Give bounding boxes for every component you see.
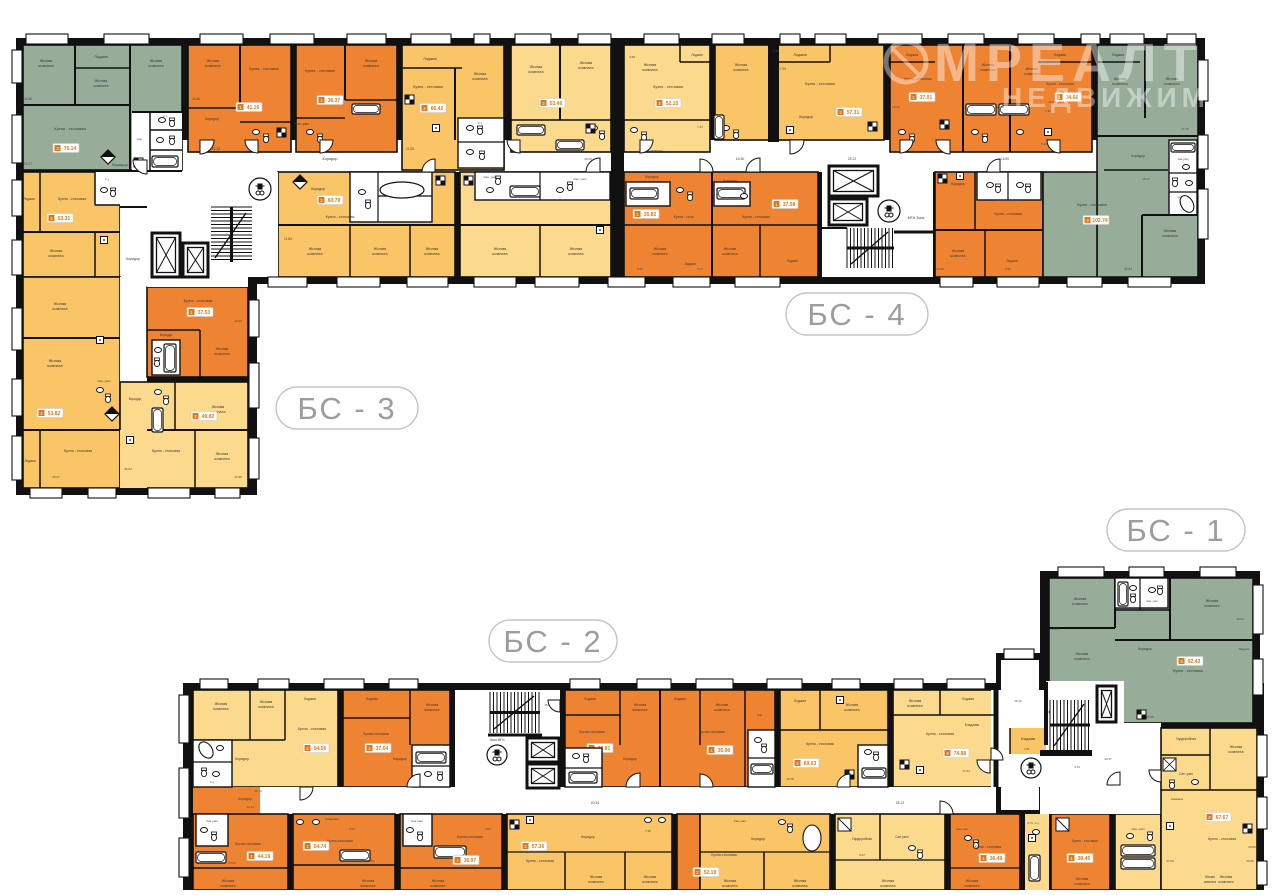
- svg-text:21.88: 21.88: [406, 147, 414, 151]
- svg-text:11.86: 11.86: [192, 97, 200, 101]
- svg-text:комната: комната: [964, 883, 980, 888]
- svg-text:36.06: 36.06: [584, 157, 592, 161]
- svg-text:Коридор: Коридор: [238, 797, 252, 801]
- svg-text:Кухня - столовая: Кухня - столовая: [326, 215, 355, 219]
- svg-text:41.16: 41.16: [247, 105, 260, 111]
- svg-text:Лоджия: Лоджия: [366, 697, 378, 701]
- svg-text:44.19: 44.19: [258, 854, 271, 860]
- svg-text:комната: комната: [1218, 879, 1234, 884]
- svg-text:14.20: 14.20: [234, 319, 242, 323]
- svg-text:Гардеробная: Гардеробная: [1176, 737, 1196, 741]
- svg-text:36.49: 36.49: [990, 856, 1003, 862]
- svg-text:Коридор: Коридор: [799, 115, 813, 119]
- svg-text:Лоджия: Лоджия: [684, 262, 696, 266]
- svg-text:комната: комната: [1162, 233, 1178, 238]
- svg-text:Сан узел: Сан узел: [895, 835, 908, 839]
- svg-text:комната: комната: [307, 251, 323, 256]
- svg-text:Кухня - столовая: Кухня - столовая: [413, 85, 443, 89]
- svg-text:Кухня-столовая: Кухня-столовая: [699, 730, 725, 734]
- svg-text:комната: комната: [722, 883, 738, 888]
- svg-text:66.42: 66.42: [431, 106, 444, 112]
- svg-text:БС - 1: БС - 1: [1126, 513, 1225, 548]
- svg-text:МГН Зона: МГН Зона: [908, 216, 925, 220]
- svg-text:Кладовая: Кладовая: [965, 723, 980, 727]
- svg-text:36.97: 36.97: [464, 858, 477, 864]
- svg-text:10.98: 10.98: [936, 267, 944, 271]
- svg-text:Кухня - столовая: Кухня - столовая: [64, 449, 92, 453]
- svg-text:53.49: 53.49: [550, 101, 563, 107]
- svg-text:Кор.: Кор.: [757, 713, 763, 717]
- svg-text:3.69: 3.69: [629, 55, 635, 59]
- svg-text:Кухня - стол.: Кухня - стол.: [674, 215, 695, 219]
- svg-text:Лоджия: Лоджия: [793, 53, 806, 57]
- svg-text:10.17: 10.17: [24, 162, 32, 166]
- svg-text:комната: комната: [714, 707, 730, 712]
- svg-text:Лоджия: Лоджия: [423, 57, 436, 61]
- svg-text:Коридор: Коридор: [323, 157, 338, 161]
- svg-text:БС - 4: БС - 4: [807, 297, 906, 332]
- svg-text:16.27: 16.27: [1142, 177, 1150, 181]
- svg-text:25.22: 25.22: [848, 157, 857, 161]
- svg-text:Лоджия: Лоджия: [584, 697, 596, 701]
- svg-text:37.64: 37.64: [376, 746, 389, 752]
- svg-text:Коридор: Коридор: [1131, 154, 1145, 158]
- svg-text:С.у.: С.у.: [1035, 821, 1040, 825]
- svg-text:76.14: 76.14: [64, 146, 77, 152]
- svg-text:69.03: 69.03: [804, 761, 817, 767]
- svg-text:комната: комната: [568, 251, 584, 256]
- svg-text:Кухня - столовая: Кухня - столовая: [1077, 203, 1107, 207]
- svg-text:комната: комната: [492, 251, 508, 256]
- svg-text:Кладовая: Кладовая: [325, 817, 339, 821]
- svg-text:Кухня - столовая: Кухня - столовая: [742, 215, 769, 219]
- svg-text:комната: комната: [588, 879, 604, 884]
- svg-text:53.31: 53.31: [58, 216, 71, 222]
- svg-text:комната: комната: [214, 456, 230, 461]
- svg-text:26.05: 26.05: [1146, 715, 1154, 719]
- svg-text:44.37: 44.37: [1104, 757, 1112, 761]
- svg-text:комната: комната: [528, 69, 544, 74]
- svg-text:Кладовая: Кладовая: [1021, 737, 1036, 741]
- svg-text:25.22: 25.22: [896, 801, 905, 805]
- svg-text:комната: комната: [205, 63, 221, 68]
- svg-text:7.96: 7.96: [645, 829, 651, 833]
- svg-text:комната: комната: [372, 251, 388, 256]
- svg-text:Комната: Комната: [1171, 797, 1183, 801]
- svg-text:35.47: 35.47: [52, 475, 60, 479]
- svg-text:12.88: 12.88: [234, 475, 242, 479]
- svg-text:Коридор: Коридор: [623, 757, 637, 761]
- svg-text:37.53: 37.53: [198, 310, 211, 316]
- svg-text:17.04: 17.04: [962, 769, 970, 773]
- svg-text:Коридор: Коридор: [581, 835, 595, 839]
- svg-text:Сан узел: Сан узел: [411, 819, 423, 823]
- svg-text:комната: комната: [48, 253, 64, 258]
- svg-text:Лоджия: Лоджия: [304, 697, 316, 701]
- svg-text:Коридор: Коридор: [112, 162, 129, 167]
- svg-text:54.74: 54.74: [314, 844, 327, 850]
- svg-text:Гардеробная: Гардеробная: [852, 837, 872, 841]
- svg-text:35.82: 35.82: [644, 212, 657, 218]
- svg-text:С.у: С.у: [210, 780, 215, 784]
- svg-text:67.67: 67.67: [1216, 815, 1229, 821]
- svg-text:Сан узел: Сан узел: [1178, 157, 1189, 161]
- svg-text:3.99: 3.99: [1005, 267, 1011, 271]
- svg-text:35.90: 35.90: [718, 748, 731, 754]
- svg-text:21.86: 21.86: [284, 237, 292, 241]
- svg-text:Кухня-столовая: Кухня-столовая: [579, 730, 605, 734]
- svg-text:Лоджия: Лоджия: [674, 697, 686, 701]
- svg-text:комната: комната: [1074, 656, 1090, 661]
- svg-text:37.58: 37.58: [783, 202, 796, 208]
- svg-text:34.64: 34.64: [1124, 267, 1132, 271]
- svg-text:4.00: 4.00: [485, 827, 491, 831]
- svg-text:Кухня - столовая: Кухня - столовая: [975, 845, 1002, 849]
- svg-text:Зона МГН: Зона МГН: [490, 738, 505, 742]
- svg-text:Коридор: Коридор: [205, 117, 219, 121]
- svg-text:60.79: 60.79: [328, 198, 341, 204]
- svg-text:комната: комната: [430, 883, 446, 888]
- svg-text:комната: комната: [47, 363, 63, 368]
- svg-text:Сан. узел: Сан. узел: [1146, 599, 1158, 603]
- svg-text:БС - 2: БС - 2: [503, 624, 602, 659]
- svg-text:комната: комната: [907, 703, 923, 708]
- svg-text:Коридор: Коридор: [393, 757, 407, 761]
- svg-text:Кор.: Кор.: [137, 137, 143, 141]
- svg-text:комната: комната: [652, 251, 668, 256]
- svg-text:Кухня - столовая: Кухня - столовая: [1072, 839, 1098, 843]
- svg-text:Лоджия: Лоджия: [786, 259, 798, 263]
- svg-text:Кухня - столовая: Кухня - столовая: [305, 69, 335, 73]
- svg-text:17.09: 17.09: [1166, 859, 1174, 863]
- svg-text:БС - 3: БС - 3: [297, 391, 396, 426]
- svg-text:Сан узел: Сан узел: [956, 827, 969, 831]
- svg-text:Коридор: Коридор: [648, 149, 663, 153]
- svg-text:С.у: С.у: [163, 114, 168, 118]
- svg-text:Сан. узел: Сан. узел: [295, 122, 309, 126]
- svg-text:комната: комната: [642, 879, 658, 884]
- svg-text:3.47: 3.47: [859, 853, 865, 857]
- svg-text:18.04: 18.04: [1236, 617, 1244, 621]
- svg-text:комната: комната: [1204, 603, 1220, 608]
- svg-text:комната: комната: [844, 707, 860, 712]
- svg-text:Сан. узел: Сан. узел: [483, 175, 497, 179]
- svg-text:Кухня - столовая: Кухня - столовая: [526, 859, 554, 863]
- svg-text:Кухня - столовая: Кухня - столовая: [298, 727, 326, 731]
- svg-text:92.43: 92.43: [1188, 659, 1201, 665]
- svg-text:комната: комната: [52, 306, 68, 311]
- svg-text:Сан. узел: Сан. узел: [1131, 827, 1145, 831]
- svg-text:комната: комната: [472, 76, 488, 81]
- svg-text:Кухня - столовая: Кухня - столовая: [805, 82, 835, 86]
- svg-text:12.13: 12.13: [246, 805, 254, 809]
- svg-text:57.31: 57.31: [847, 110, 860, 116]
- svg-text:17.09: 17.09: [778, 67, 786, 71]
- svg-text:Кухня - столовая: Кухня - столовая: [1208, 837, 1236, 841]
- svg-text:Кухня - столовая: Кухня - столовая: [249, 67, 279, 71]
- svg-text:3.73: 3.73: [1027, 821, 1033, 825]
- svg-text:Кухня - столовая: Кухня - столовая: [184, 299, 213, 303]
- svg-text:Кухня - столовая: Кухня - столовая: [58, 197, 86, 201]
- svg-text:Кухня - столовая: Кухня - столовая: [152, 449, 180, 453]
- svg-text:Кухня - столовая: Кухня - столовая: [806, 742, 834, 746]
- svg-text:Коридор: Коридор: [645, 175, 659, 179]
- svg-text:комната: комната: [93, 83, 109, 88]
- svg-text:комната: комната: [214, 351, 230, 356]
- svg-text:С.у: С.у: [105, 177, 110, 181]
- svg-text:Коридор: Коридор: [160, 333, 173, 337]
- svg-text:Коридор: Коридор: [751, 837, 765, 841]
- svg-text:Коридор: Коридор: [129, 397, 142, 401]
- svg-text:комната: комната: [38, 63, 54, 68]
- svg-text:52.15: 52.15: [666, 101, 679, 107]
- svg-text:Кухня - столовая: Кухня - столовая: [926, 732, 954, 736]
- svg-text:комната: комната: [733, 67, 749, 72]
- svg-text:3.00: 3.00: [349, 827, 355, 831]
- svg-text:комната: комната: [424, 707, 440, 712]
- svg-text:комната: комната: [220, 883, 236, 888]
- svg-text:Лоджия: Лоджия: [23, 197, 35, 201]
- svg-text:Сан. узел: Сан. узел: [573, 177, 587, 181]
- svg-text:Сан узел: Сан узел: [206, 819, 218, 823]
- svg-text:С.у: С.у: [478, 121, 483, 125]
- svg-text:25.86: 25.86: [1246, 859, 1254, 863]
- svg-text:7.47: 7.47: [697, 125, 703, 129]
- svg-text:Кухня-столовая: Кухня-столовая: [235, 842, 261, 846]
- svg-text:Кухня-столовая: Кухня-столовая: [711, 853, 737, 857]
- svg-text:Коридор: Коридор: [951, 182, 965, 186]
- svg-text:74.88: 74.88: [954, 751, 967, 757]
- svg-text:Кухня - столовая: Кухня - столовая: [1173, 669, 1203, 673]
- svg-text:комната: комната: [1072, 601, 1088, 606]
- svg-text:20.86: 20.86: [1248, 845, 1256, 849]
- svg-text:Жилая: Жилая: [1205, 875, 1215, 879]
- svg-text:Лоджия: Лоджия: [794, 699, 806, 703]
- svg-text:комната: комната: [258, 704, 274, 709]
- svg-text:Кухня-столовая: Кухня-столовая: [457, 835, 483, 839]
- svg-text:4.75: 4.75: [773, 49, 779, 53]
- svg-text:Лоджия: Лоджия: [962, 697, 974, 701]
- svg-text:комната: комната: [148, 63, 164, 68]
- svg-text:6.17: 6.17: [697, 267, 703, 271]
- svg-text:2.81: 2.81: [1024, 747, 1030, 751]
- svg-text:Лоджия: Лоджия: [1239, 647, 1250, 651]
- svg-text:Коридор: Коридор: [1138, 647, 1152, 651]
- svg-text:НЕДВИЖИМОСТЬ: НЕДВИЖИМОСТЬ: [1002, 82, 1280, 113]
- svg-text:13.81: 13.81: [1051, 627, 1059, 631]
- svg-text:комната: комната: [792, 883, 808, 888]
- svg-text:Коридор: Коридор: [126, 257, 140, 261]
- svg-text:комната: комната: [950, 253, 966, 258]
- svg-text:Коридор: Коридор: [235, 757, 249, 761]
- svg-text:36.04: 36.04: [124, 467, 132, 471]
- svg-text:Кухня - столовая: Кухня - столовая: [994, 212, 1021, 216]
- svg-text:Кухня-столовая: Кухня-столовая: [363, 732, 389, 736]
- svg-text:Сан узел: Сан узел: [734, 819, 747, 823]
- svg-text:Сан. узел: Сан. узел: [97, 379, 111, 383]
- svg-text:комната: комната: [880, 883, 896, 888]
- svg-text:13.78: 13.78: [786, 777, 794, 781]
- svg-text:комната: комната: [1204, 880, 1216, 884]
- svg-text:Лоджия: Лоджия: [1006, 259, 1018, 263]
- svg-text:Коридор: Коридор: [311, 187, 325, 191]
- svg-text:17.75: 17.75: [1181, 127, 1189, 131]
- svg-text:18.50: 18.50: [736, 157, 745, 161]
- svg-text:36.37: 36.37: [328, 98, 341, 104]
- svg-text:16.50: 16.50: [1001, 157, 1009, 161]
- svg-text:Кухня - столовая: Кухня - столовая: [653, 85, 683, 89]
- svg-text:Лоджия: Лоджия: [24, 459, 36, 463]
- svg-text:53.82: 53.82: [48, 411, 61, 417]
- svg-text:54.56: 54.56: [314, 746, 327, 752]
- svg-text:11.86: 11.86: [24, 97, 32, 101]
- svg-text:21.54: 21.54: [212, 147, 221, 151]
- svg-text:49.82: 49.82: [202, 414, 215, 420]
- svg-text:комната: комната: [1074, 881, 1090, 886]
- svg-text:комната: комната: [578, 65, 594, 70]
- svg-text:Сан. узел: Сан. узел: [1179, 772, 1193, 776]
- svg-text:102.74: 102.74: [1092, 218, 1108, 224]
- svg-text:комната: комната: [722, 251, 738, 256]
- svg-text:16.22: 16.22: [1014, 699, 1022, 703]
- svg-text:3.73: 3.73: [1074, 765, 1080, 769]
- svg-text:13.09: 13.09: [228, 861, 236, 865]
- svg-text:комната: комната: [360, 883, 376, 888]
- svg-text:комната: комната: [632, 707, 648, 712]
- svg-text:комната: комната: [363, 63, 379, 68]
- svg-text:13.08: 13.08: [366, 859, 374, 863]
- svg-text:Кухня-столовая: Кухня-столовая: [327, 839, 353, 843]
- svg-text:комната: комната: [1228, 749, 1244, 754]
- svg-text:Лоджия: Лоджия: [906, 53, 919, 57]
- svg-text:Лоджия: Лоджия: [691, 53, 703, 57]
- svg-text:комната: комната: [213, 706, 229, 711]
- svg-text:5.42: 5.42: [1041, 142, 1047, 146]
- svg-text:комната: комната: [424, 251, 440, 256]
- svg-text:Лоджия: Лоджия: [94, 55, 107, 59]
- svg-text:52.19: 52.19: [704, 870, 717, 876]
- svg-text:20.54: 20.54: [591, 801, 600, 805]
- svg-text:3.83: 3.83: [637, 267, 643, 271]
- svg-text:38.45: 38.45: [1078, 856, 1091, 862]
- svg-text:10.50: 10.50: [892, 105, 900, 109]
- svg-text:12.13: 12.13: [254, 789, 262, 793]
- svg-text:комната: комната: [642, 67, 658, 72]
- svg-text:37.01: 37.01: [920, 95, 933, 101]
- svg-text:Кухня - столовая: Кухня - столовая: [54, 126, 85, 131]
- svg-text:57.36: 57.36: [532, 844, 545, 850]
